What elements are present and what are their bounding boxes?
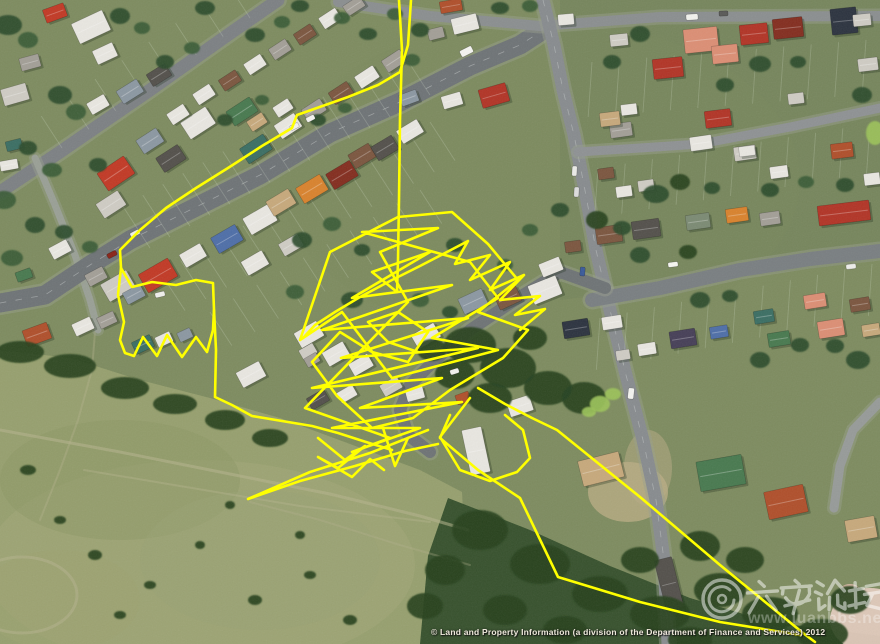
photo-grain-overlay bbox=[0, 0, 880, 644]
watermark-url: www.luanbbs.net bbox=[748, 610, 880, 628]
copyright-text: © Land and Property Information (a divis… bbox=[431, 627, 825, 637]
aerial-map-screenshot: www.luanbbs.net © Land and Property Info… bbox=[0, 0, 880, 644]
aerial-map bbox=[0, 0, 880, 644]
